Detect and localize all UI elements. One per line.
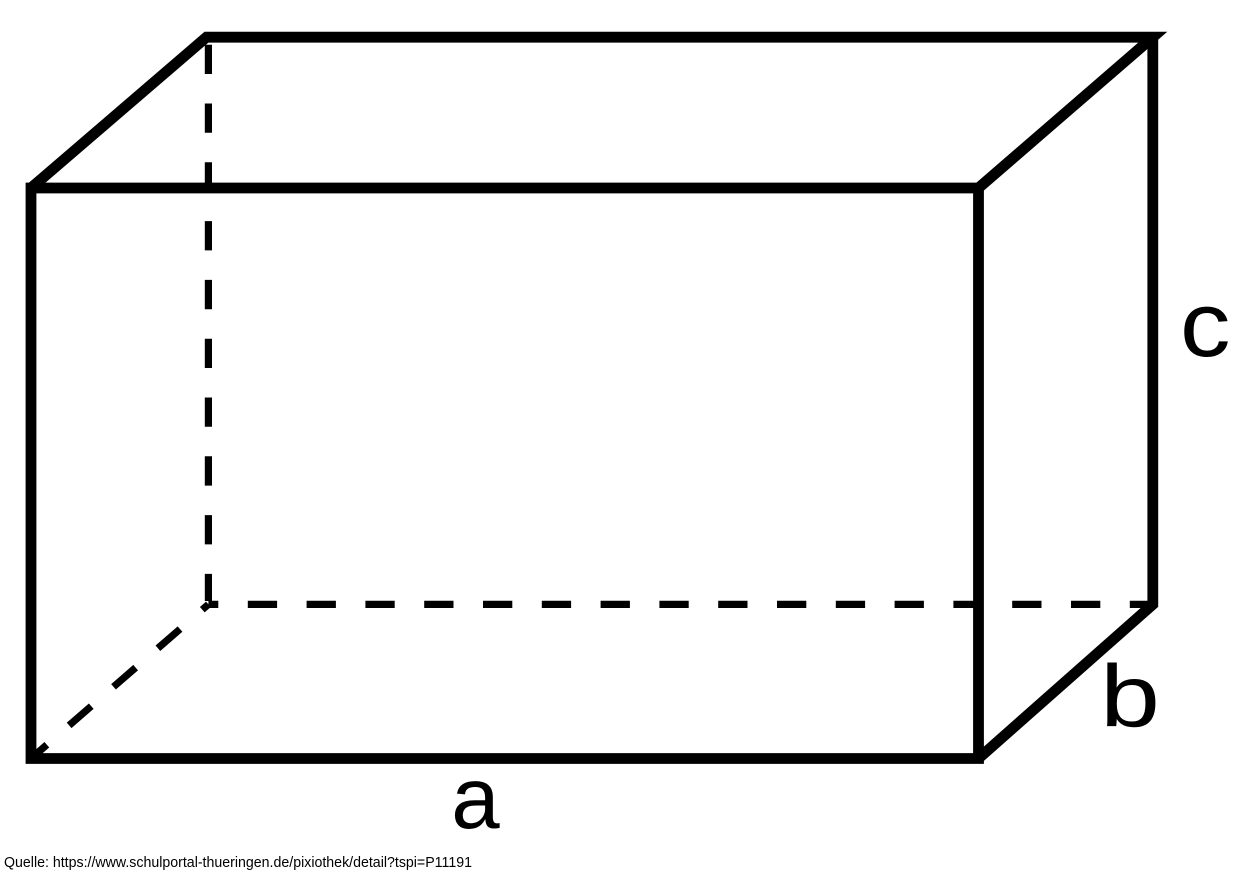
svg-text:Quelle: https://www.schulporta: Quelle: https://www.schulportal-thuering… [4, 854, 472, 871]
svg-text:b: b [1100, 646, 1160, 745]
svg-text:c: c [1180, 274, 1231, 376]
svg-text:a: a [451, 750, 500, 847]
